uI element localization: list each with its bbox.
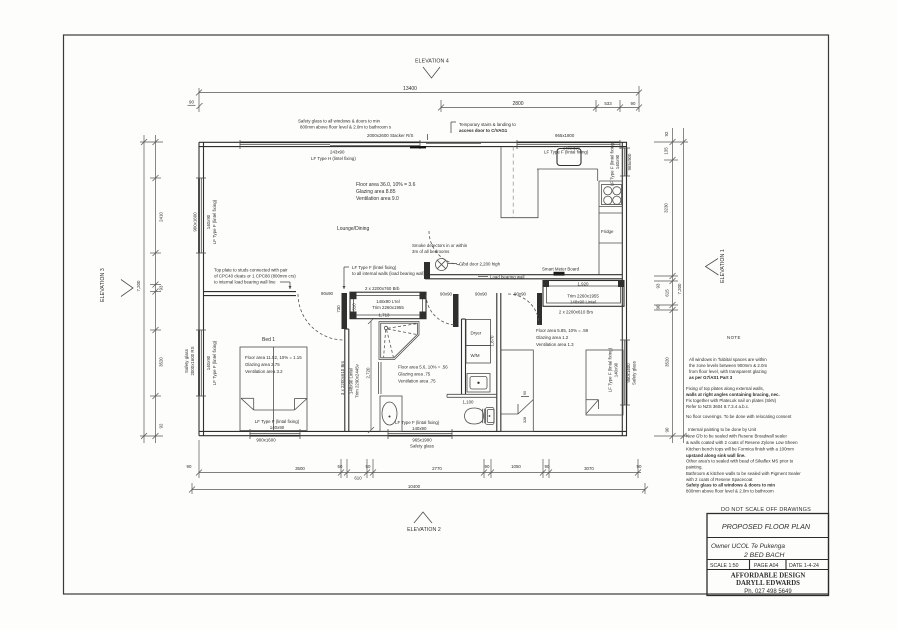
svg-text:90: 90 bbox=[631, 101, 636, 106]
svg-text:Ventilation area 9.0: Ventilation area 9.0 bbox=[356, 196, 399, 202]
svg-text:the zone levels between 900mm: the zone levels between 900mm & 2.0m bbox=[689, 363, 767, 368]
svg-text:2000x1600 RS: 2000x1600 RS bbox=[190, 346, 195, 375]
svg-text:LF Type F (lintel fixing): LF Type F (lintel fixing) bbox=[212, 340, 217, 385]
svg-text:965x1900: 965x1900 bbox=[412, 438, 432, 443]
svg-text:3m of all bedrooms: 3m of all bedrooms bbox=[412, 249, 450, 254]
svg-text:90: 90 bbox=[545, 464, 550, 469]
svg-text:Load bearing wall: Load bearing wall bbox=[490, 275, 524, 280]
svg-text:800mm above floor level & 2.0m: 800mm above floor level & 2.0m to bathro… bbox=[300, 125, 392, 130]
svg-text:LF Type F (lintal fixing): LF Type F (lintal fixing) bbox=[255, 419, 300, 424]
svg-text:2800: 2800 bbox=[512, 101, 523, 107]
svg-text:Bed 1: Bed 1 bbox=[262, 337, 275, 343]
svg-text:3520: 3520 bbox=[159, 357, 164, 367]
svg-text:Safety glass: Safety glass bbox=[632, 360, 637, 385]
svg-text:Ventilation area .75: Ventilation area .75 bbox=[398, 379, 436, 384]
svg-text:148x90 Lintel: 148x90 Lintel bbox=[570, 300, 596, 305]
svg-text:Ventilation area 1.3: Ventilation area 1.3 bbox=[536, 342, 574, 347]
svg-text:with 2 coats of Resene Spaceco: with 2 coats of Resene Spacecoat bbox=[686, 477, 753, 482]
svg-text:Ventilation area 3.2: Ventilation area 3.2 bbox=[245, 369, 283, 374]
svg-text:965x1800: 965x1800 bbox=[555, 133, 575, 138]
svg-text:93: 93 bbox=[159, 285, 164, 290]
svg-text:PAGE A04: PAGE A04 bbox=[754, 563, 779, 569]
svg-text:Floor area 5.6, 10% = .56: Floor area 5.6, 10% = .56 bbox=[398, 365, 448, 370]
svg-text:140x90: 140x90 bbox=[615, 154, 620, 169]
svg-text:Glazing area 8.85: Glazing area 8.85 bbox=[356, 189, 396, 195]
svg-text:Smart Meter Board: Smart Meter Board bbox=[542, 267, 580, 272]
svg-text:533: 533 bbox=[604, 101, 612, 106]
svg-text:Bathroom & kitchen walls to be: Bathroom & kitchen walls to be sealed wi… bbox=[686, 471, 801, 476]
svg-text:AFFORDABLE DESIGN: AFFORDABLE DESIGN bbox=[731, 573, 806, 580]
svg-text:140x90: 140x90 bbox=[206, 355, 211, 370]
svg-text:Safety glass to all windows &: Safety glass to all windows & doors to m… bbox=[298, 119, 381, 124]
svg-text:2770: 2770 bbox=[432, 466, 442, 471]
svg-text:13400: 13400 bbox=[403, 86, 417, 92]
svg-text:7,200: 7,200 bbox=[136, 280, 141, 292]
svg-text:2 x 2200x760 Brb: 2 x 2200x760 Brb bbox=[365, 286, 400, 291]
svg-text:90: 90 bbox=[656, 304, 661, 309]
svg-text:965x900: 965x900 bbox=[627, 153, 632, 170]
svg-text:Floor area 5.85, 10% = .59: Floor area 5.85, 10% = .59 bbox=[536, 328, 589, 333]
svg-text:328: 328 bbox=[523, 417, 527, 423]
svg-text:Fix together with PlateLok nai: Fix together with PlateLok nail on plate… bbox=[686, 398, 777, 403]
svg-text:90: 90 bbox=[485, 464, 490, 469]
svg-text:LF Type F (lintel fixing): LF Type F (lintel fixing) bbox=[212, 199, 217, 244]
svg-text:1,920: 1,920 bbox=[578, 281, 590, 286]
svg-text:148x90 Lintel: 148x90 Lintel bbox=[349, 368, 354, 394]
svg-text:800mm above floor level & 2.0m: 800mm above floor level & 2.0m to bathro… bbox=[686, 489, 774, 494]
svg-text:LF Type H (lintel fixing): LF Type H (lintel fixing) bbox=[311, 156, 356, 161]
svg-text:2,720: 2,720 bbox=[366, 367, 371, 379]
svg-text:140x90: 140x90 bbox=[412, 426, 427, 431]
svg-text:Trim 2260x1955: Trim 2260x1955 bbox=[372, 305, 404, 310]
svg-text:ELEVATION 2: ELEVATION 2 bbox=[407, 527, 441, 533]
svg-text:LF Type F (lintel fixing): LF Type F (lintel fixing) bbox=[352, 265, 397, 270]
svg-text:Glazing area 2.75: Glazing area 2.75 bbox=[245, 362, 280, 367]
svg-text:148x90 L'tel: 148x90 L'tel bbox=[376, 299, 400, 304]
svg-text:90: 90 bbox=[187, 464, 192, 469]
svg-text:1,870: 1,870 bbox=[490, 335, 495, 347]
svg-text:3230: 3230 bbox=[664, 203, 669, 213]
svg-text:Kitchen bench tops will be For: Kitchen bench tops will be Formica finis… bbox=[686, 447, 794, 452]
svg-text:90x90: 90x90 bbox=[514, 292, 527, 297]
svg-text:Other area's to sealed with be: Other area's to sealed with bead of Sika… bbox=[686, 459, 794, 464]
svg-text:Refer to NZS 3604 8.7.3.4 a.b.: Refer to NZS 3604 8.7.3.4 a.b.c. bbox=[686, 404, 749, 409]
svg-text:3520: 3520 bbox=[665, 357, 670, 367]
svg-text:W/M: W/M bbox=[471, 353, 480, 358]
svg-text:92: 92 bbox=[664, 131, 669, 136]
svg-text:Ph. 027 498 5649: Ph. 027 498 5649 bbox=[744, 589, 792, 595]
svg-text:50: 50 bbox=[338, 464, 343, 469]
svg-text:90: 90 bbox=[637, 464, 642, 469]
svg-text:2 x 2200x610 Brs: 2 x 2200x610 Brs bbox=[559, 310, 594, 315]
svg-text:LF Type F (lintal fixing): LF Type F (lintal fixing) bbox=[608, 347, 613, 392]
svg-text:Internal painting to be done b: Internal painting to be done by Unit bbox=[688, 427, 757, 432]
svg-text:Top plate to studs connected w: Top plate to studs connected with pair bbox=[214, 268, 288, 273]
svg-text:50: 50 bbox=[366, 464, 371, 469]
svg-text:to all internal walls (load be: to all internal walls (load bearing wall… bbox=[352, 271, 426, 276]
svg-text:90x90: 90x90 bbox=[475, 292, 488, 297]
svg-text:PROPOSED FLOOR PLAN: PROPOSED FLOOR PLAN bbox=[722, 522, 811, 531]
svg-text:DO NOT SCALE OFF DRAWINGS: DO NOT SCALE OFF DRAWINGS bbox=[721, 507, 811, 513]
svg-text:3 x 2200x610 Brs: 3 x 2200x610 Brs bbox=[340, 360, 345, 395]
svg-text:1,100: 1,100 bbox=[463, 400, 475, 405]
svg-text:NOTE: NOTE bbox=[727, 335, 741, 340]
svg-text:painting.: painting. bbox=[686, 465, 703, 470]
svg-text:as per G7/AS1 Part 3: as per G7/AS1 Part 3 bbox=[689, 375, 733, 380]
svg-text:ELEVATION 3: ELEVATION 3 bbox=[100, 268, 106, 302]
svg-text:Safety glass to all windows &: Safety glass to all windows & doors to m… bbox=[686, 483, 775, 488]
svg-text:2410: 2410 bbox=[159, 212, 164, 222]
svg-text:Fridge: Fridge bbox=[601, 229, 614, 234]
svg-text:LF Type F (lintal fixing): LF Type F (lintal fixing) bbox=[544, 150, 589, 155]
svg-text:LF Type F (lintel fixing): LF Type F (lintel fixing) bbox=[610, 141, 615, 186]
svg-text:Trim 2290x2445v: Trim 2290x2445v bbox=[355, 363, 360, 398]
svg-text:Safety glass: Safety glass bbox=[410, 444, 435, 449]
svg-text:7,200: 7,200 bbox=[677, 283, 682, 295]
svg-text:140x90: 140x90 bbox=[614, 362, 619, 377]
svg-text:access door to C/VAG1: access door to C/VAG1 bbox=[459, 128, 508, 133]
svg-text:ELEVATION 4: ELEVATION 4 bbox=[415, 59, 449, 65]
svg-text:SCALE 1:50: SCALE 1:50 bbox=[710, 563, 739, 569]
svg-text:to internal load bearing wall: to internal load bearing wall line bbox=[214, 280, 276, 285]
svg-text:1050: 1050 bbox=[511, 464, 521, 469]
svg-text:93: 93 bbox=[656, 283, 661, 288]
svg-text:Glazing area 1.2: Glazing area 1.2 bbox=[536, 335, 569, 340]
svg-text:90: 90 bbox=[523, 391, 527, 395]
svg-text:of CPC40 cleats or 1 CPC80 (80: of CPC40 cleats or 1 CPC80 (800mm crs) bbox=[214, 274, 296, 279]
svg-text:All windows in 'habital spaces: All windows in 'habital spaces are withi… bbox=[689, 357, 767, 362]
svg-text:Owner UCOL Te Pukenga: Owner UCOL Te Pukenga bbox=[711, 543, 785, 550]
svg-text:Smoke detectors in or within: Smoke detectors in or within bbox=[412, 243, 468, 248]
svg-text:Floor area 36.0, 10% = 3.6: Floor area 36.0, 10% = 3.6 bbox=[356, 182, 416, 188]
svg-text:2 BED BACH: 2 BED BACH bbox=[743, 552, 785, 559]
svg-text:900x1600: 900x1600 bbox=[193, 212, 198, 232]
svg-text:90: 90 bbox=[189, 100, 194, 105]
svg-text:950x1400: 950x1400 bbox=[626, 363, 631, 383]
svg-text:C/bd door 2,200 high: C/bd door 2,200 high bbox=[459, 262, 501, 267]
svg-text:upstand along sink wall line.: upstand along sink wall line. bbox=[686, 453, 746, 458]
svg-text:900x1600: 900x1600 bbox=[256, 438, 276, 443]
svg-text:90: 90 bbox=[665, 427, 670, 432]
svg-text:1,713: 1,713 bbox=[379, 313, 391, 318]
svg-text:DATE 1-4-24: DATE 1-4-24 bbox=[789, 563, 819, 569]
svg-text:135: 135 bbox=[664, 147, 669, 155]
svg-text:3070: 3070 bbox=[584, 466, 594, 471]
svg-text:Dryer: Dryer bbox=[471, 331, 482, 336]
svg-text:Glazing area .75: Glazing area .75 bbox=[398, 372, 431, 377]
svg-text:92: 92 bbox=[159, 423, 164, 428]
svg-text:140x90: 140x90 bbox=[206, 214, 211, 229]
svg-text:140x90: 140x90 bbox=[270, 425, 285, 430]
svg-text:3500: 3500 bbox=[295, 466, 305, 471]
svg-text:10400: 10400 bbox=[408, 484, 421, 489]
svg-text:New G'b to be sealed with Rese: New G'b to be sealed with Resene Broadwa… bbox=[686, 434, 787, 439]
svg-text:90x90: 90x90 bbox=[440, 292, 453, 297]
svg-text:No floor coverings. To be don: No floor coverings. To be done with relo… bbox=[686, 414, 792, 419]
svg-text:243x90: 243x90 bbox=[330, 150, 345, 155]
svg-text:DARYLL EDWARDS: DARYLL EDWARDS bbox=[736, 580, 800, 587]
svg-text:2000x2600 Stacker R/S: 2000x2600 Stacker R/S bbox=[367, 133, 413, 138]
svg-text:Safety glass: Safety glass bbox=[184, 348, 189, 373]
svg-text:510: 510 bbox=[352, 303, 357, 311]
svg-text:615: 615 bbox=[665, 289, 670, 297]
svg-text:& walls coated with 2 coats of: & walls coated with 2 coats of Resene Zy… bbox=[686, 440, 798, 445]
svg-text:from floor level, with transpa: from floor level, with transparent glazi… bbox=[689, 369, 767, 374]
svg-text:Trim 2260x1955: Trim 2260x1955 bbox=[567, 294, 599, 299]
svg-text:Fixing of top plates along ext: Fixing of top plates along external wall… bbox=[686, 386, 764, 391]
svg-text:Temporary stairs & landing to: Temporary stairs & landing to bbox=[459, 122, 516, 127]
svg-text:Lounge/Dining: Lounge/Dining bbox=[337, 226, 369, 232]
svg-text:610: 610 bbox=[354, 476, 362, 481]
svg-text:walls at right angles containi: walls at right angles containing bracing… bbox=[685, 392, 780, 397]
svg-text:ELEVATION 1: ELEVATION 1 bbox=[720, 249, 726, 283]
svg-text:90x90: 90x90 bbox=[321, 291, 334, 296]
svg-text:730: 730 bbox=[336, 305, 341, 313]
